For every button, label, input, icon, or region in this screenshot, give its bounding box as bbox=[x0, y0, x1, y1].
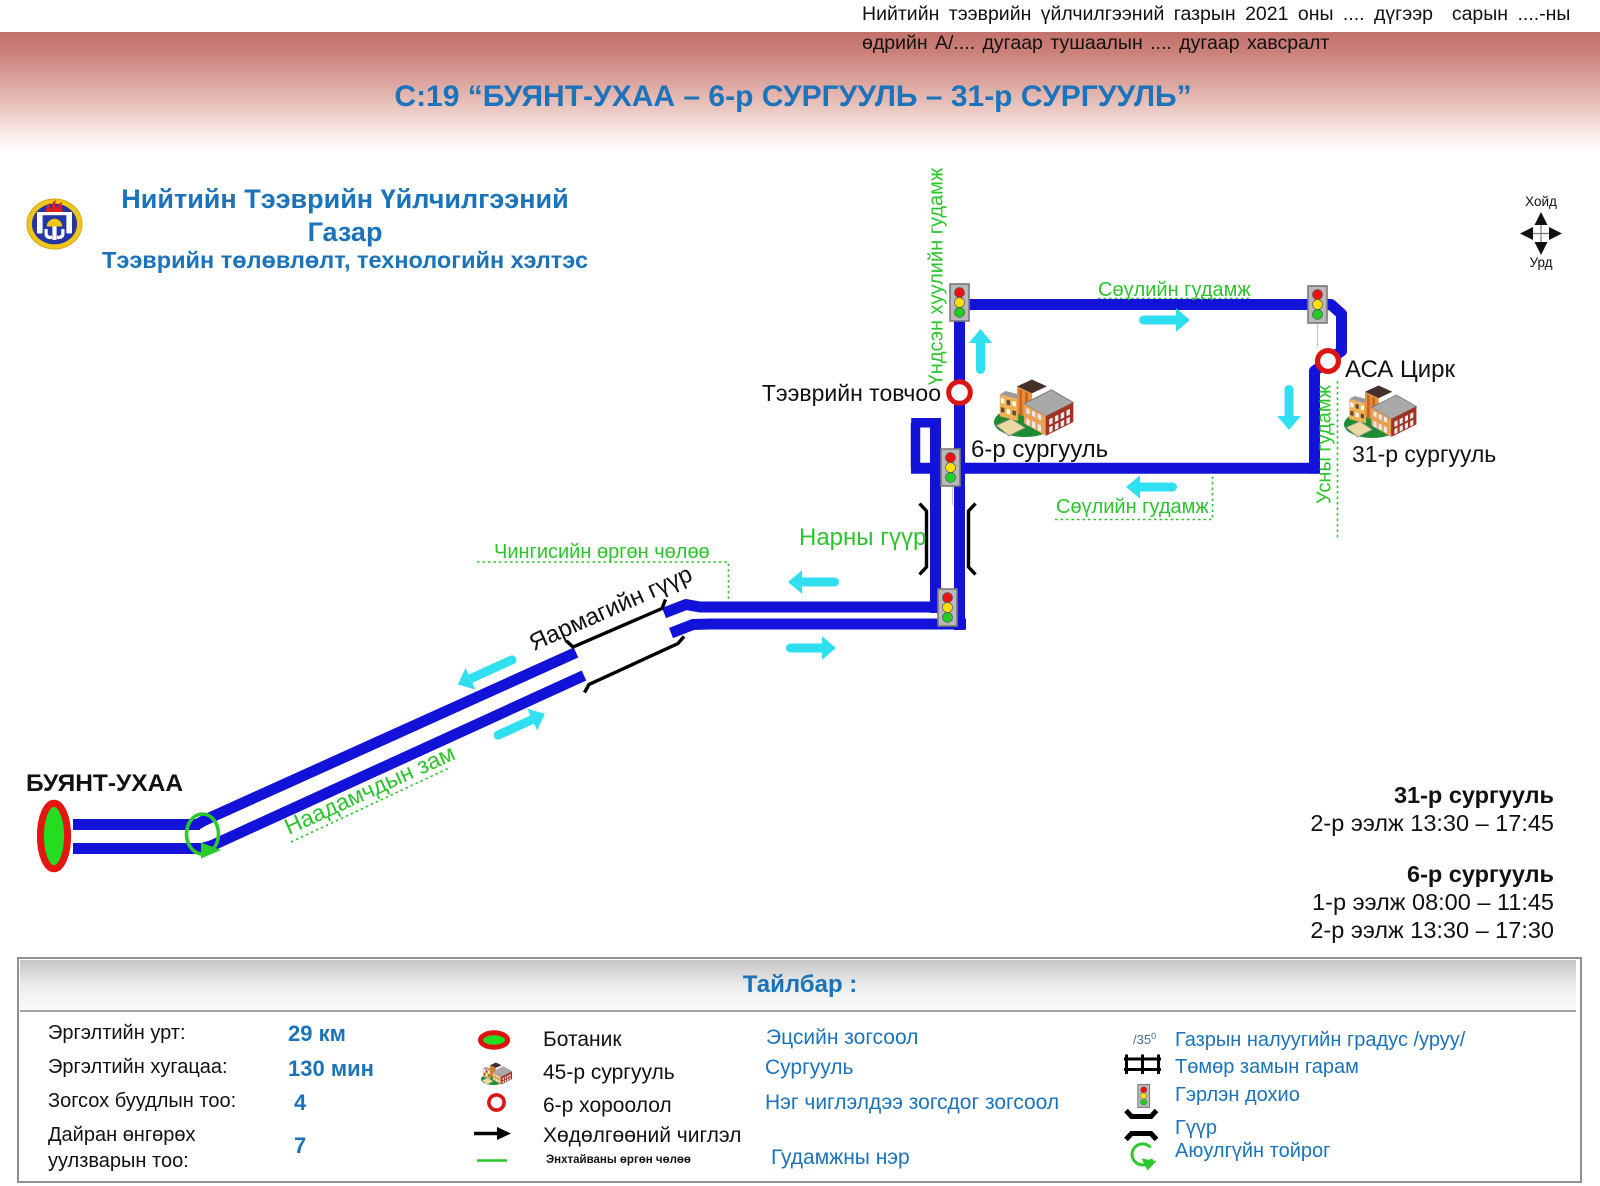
svg-text:/350: /350 bbox=[1133, 1031, 1156, 1047]
